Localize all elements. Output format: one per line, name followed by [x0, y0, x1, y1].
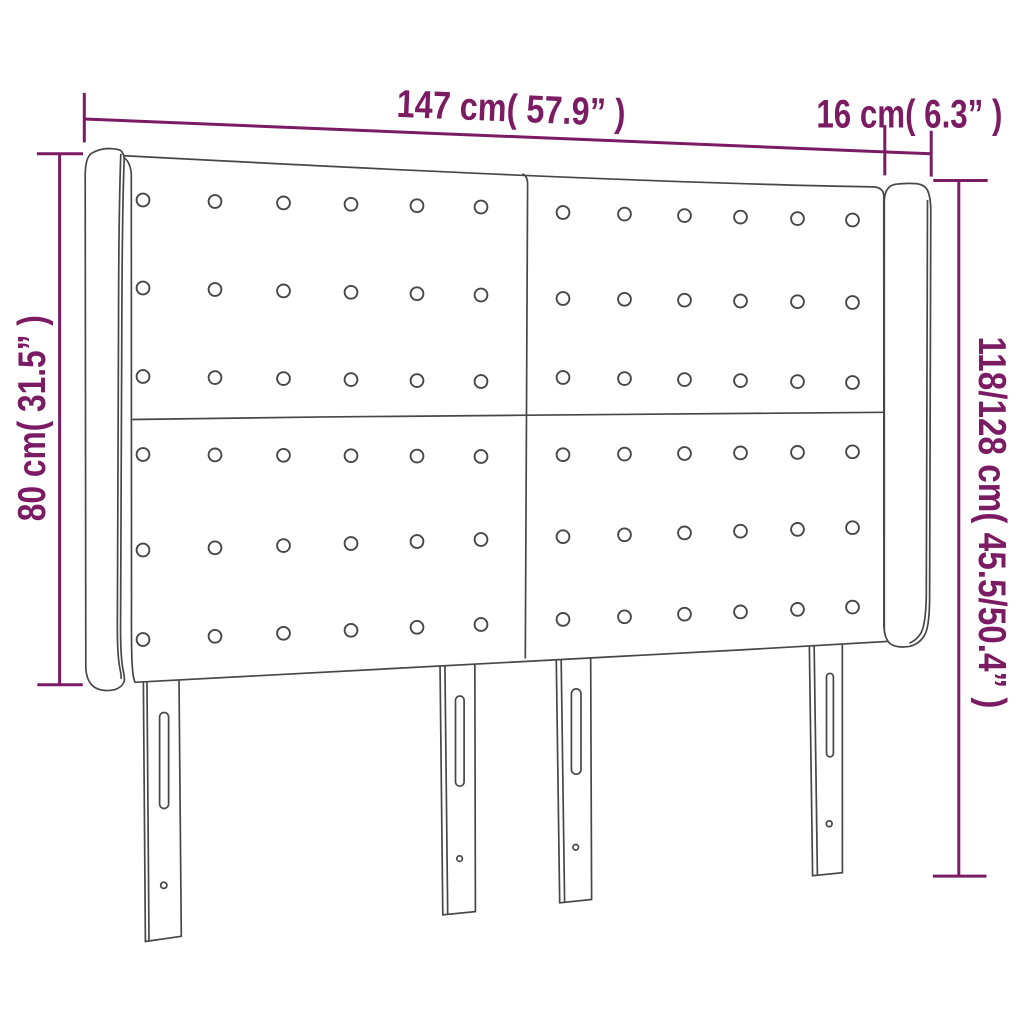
svg-text:80 cm( 31.5” ): 80 cm( 31.5” ) [11, 315, 54, 521]
svg-text:16 cm( 6.3” ): 16 cm( 6.3” ) [816, 92, 1002, 136]
svg-text:118/128 cm( 45.5/50.4” ): 118/128 cm( 45.5/50.4” ) [970, 337, 1013, 709]
